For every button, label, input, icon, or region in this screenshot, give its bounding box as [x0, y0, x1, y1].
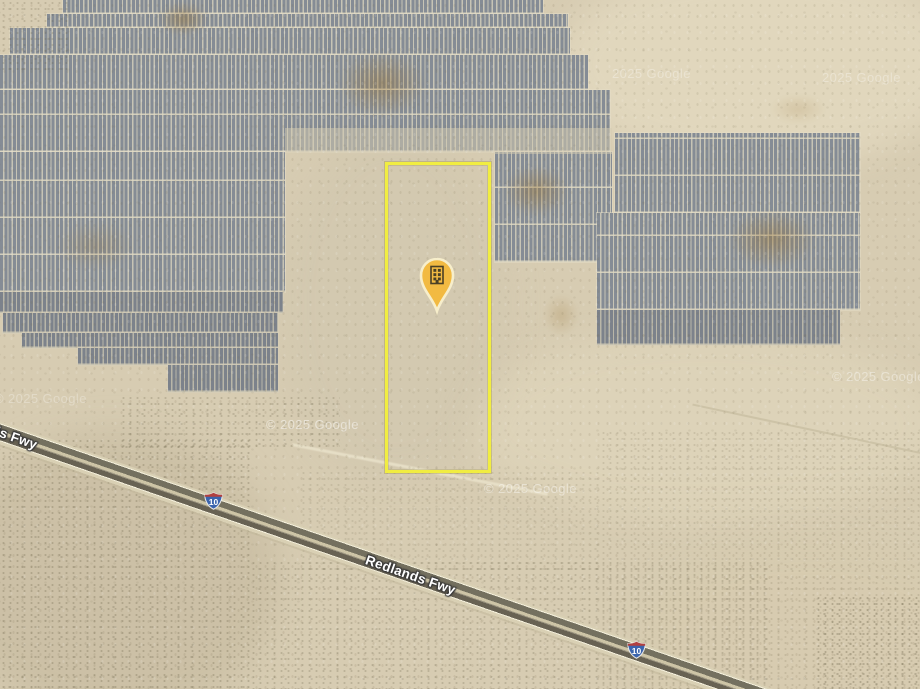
solar-array-block	[47, 14, 568, 28]
desert-scrub-texture	[300, 470, 600, 570]
solar-array-block	[0, 292, 283, 313]
dirt-stain	[770, 94, 826, 124]
desert-scrub-texture	[600, 430, 920, 689]
interstate-shield-icon: 10	[627, 641, 646, 664]
building-icon	[417, 255, 457, 315]
solar-array-block	[597, 213, 860, 310]
dirt-stain	[543, 294, 579, 336]
freeway-label: Redlands Fwy	[364, 552, 458, 597]
desert-wash-track	[292, 443, 548, 496]
sand-light-patch	[640, 540, 920, 689]
sand-dark-patch	[0, 430, 280, 689]
parcel-boundary	[385, 162, 491, 473]
solar-array-block	[495, 152, 612, 262]
solar-array-block	[10, 28, 570, 55]
solar-array-block	[0, 55, 588, 90]
sand-dark-patch	[280, 130, 510, 480]
route-number-label: 10	[209, 497, 219, 507]
map-attribution-watermark: © 2025 Google	[266, 417, 359, 432]
solar-array-block	[0, 90, 610, 152]
property-marker-pin[interactable]	[417, 255, 457, 315]
solar-array-block	[0, 152, 285, 292]
solar-array-block	[22, 333, 278, 348]
map-canvas[interactable]: 10 10 Redlands Fwy ds Fwy 2025 Google 20…	[0, 0, 920, 689]
interstate-shield-icon: 10	[204, 492, 223, 515]
solar-array-block	[63, 0, 543, 14]
desert-scrub-texture	[250, 560, 770, 689]
solar-array-block	[168, 365, 278, 392]
solar-array-block	[3, 313, 278, 333]
freeway-label-partial: ds Fwy	[0, 422, 39, 452]
solar-array-block	[615, 133, 860, 213]
freeway-road	[0, 407, 790, 689]
desert-scrub-texture	[0, 438, 250, 689]
desert-scrub-texture	[815, 595, 920, 689]
map-attribution-watermark: © 2025 Google	[0, 391, 87, 406]
desert-scrub-texture	[120, 395, 340, 450]
map-attribution-watermark: © 2025 Google	[484, 481, 577, 496]
route-number-label: 10	[632, 646, 642, 656]
solar-array-block	[597, 310, 840, 345]
map-attribution-watermark: 2025 Google	[822, 70, 901, 85]
desert-wash-track	[692, 404, 920, 455]
map-attribution-watermark: © 2025 Google	[832, 369, 920, 384]
sand-light-patch	[470, 330, 920, 520]
map-attribution-watermark: 2025 Google	[612, 66, 691, 81]
solar-array-block	[78, 348, 278, 365]
